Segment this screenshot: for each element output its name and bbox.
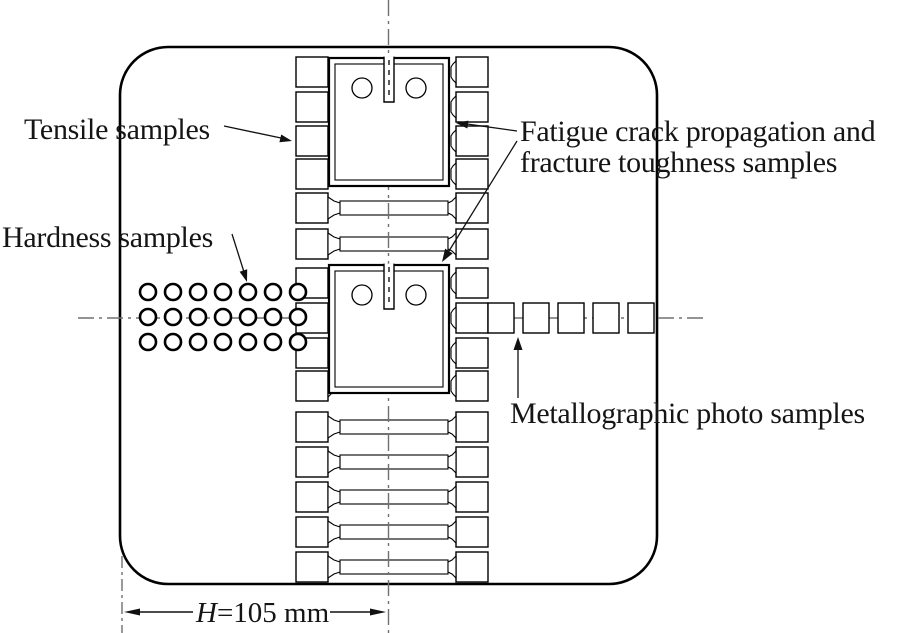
tensile-grip-square-left [296, 159, 328, 189]
hardness-sample-circle [240, 284, 256, 300]
tensile-grip-square-right [456, 552, 488, 582]
ct-pin-hole-right [406, 78, 426, 98]
tensile-samples-label: Tensile samples [24, 113, 210, 146]
metallographic-sample-square [593, 303, 619, 333]
tensile-grip-square-right [456, 412, 488, 442]
tensile-grip-square-right [456, 126, 488, 156]
fatigue-label-line2: fracture toughness samples [520, 146, 837, 179]
tensile-grip-square-left [296, 126, 328, 156]
tensile-grip-square-right [456, 193, 488, 223]
tensile-grip-square-right [456, 57, 488, 87]
hardness-sample-circle [140, 284, 156, 300]
metallographic-sample-row [488, 303, 654, 333]
hardness-sample-circle [215, 334, 231, 350]
hardness-sample-circle [290, 309, 306, 325]
tensile-grip-square-left [296, 92, 328, 122]
tensile-gauge-strip [340, 420, 448, 434]
metallographic-samples-label: Metallographic photo samples [510, 397, 865, 430]
hardness-sample-circle [265, 334, 281, 350]
tensile-grip-square-left [296, 229, 328, 259]
ct-specimen [329, 264, 449, 393]
tensile-grip-square-right [456, 482, 488, 512]
tensile-grip-square-left [296, 412, 328, 442]
hardness-samples-label: Hardness samples [2, 221, 213, 254]
tensile-gauge-strip [340, 525, 448, 539]
tensile-grips-right-column [448, 57, 488, 582]
tensile-gauge-strip [340, 490, 448, 504]
metallographic-sample-square [558, 303, 584, 333]
dimension-text: H=105 mm [195, 597, 330, 629]
tensile-grip-square-right [456, 268, 488, 298]
hardness-sample-circle [240, 309, 256, 325]
tensile-grip-square-right [456, 229, 488, 259]
ct-pin-hole-right [406, 285, 426, 305]
tensile-grip-square-left [296, 482, 328, 512]
tensile-grip-square-right [456, 371, 488, 401]
tensile-gauge-strip [340, 237, 448, 251]
tensile-grip-square-right [456, 92, 488, 122]
tensile-grip-square-left [296, 447, 328, 477]
hardness-sample-circle [215, 309, 231, 325]
hardness-sample-circle [140, 309, 156, 325]
tensile-grip-square-right [456, 338, 488, 368]
hardness-sample-circle [190, 284, 206, 300]
fatigue-label-line1: Fatigue crack propagation and [520, 115, 876, 148]
tensile-gauge-strip [340, 560, 448, 574]
hardness-sample-circle [290, 334, 306, 350]
hardness-sample-circle [215, 284, 231, 300]
tensile-grip-square-left [296, 57, 328, 87]
tensile-grip-square-right [456, 303, 488, 333]
tensile-gauge-strip [340, 201, 448, 215]
tensile-grip-square-right [456, 159, 488, 189]
hardness-sample-circle [265, 284, 281, 300]
tensile-grip-square-left [296, 193, 328, 223]
metallographic-sample-square [628, 303, 654, 333]
tensile-grip-square-right [456, 447, 488, 477]
metallographic-sample-square [488, 303, 514, 333]
sample-cutting-diagram: Tensile samples Hardness samples Fatigue… [0, 0, 906, 633]
hardness-sample-circle [165, 309, 181, 325]
ct-pin-hole-left [352, 285, 372, 305]
hardness-sample-circle [240, 334, 256, 350]
hardness-sample-grid [140, 284, 306, 350]
ct-pin-hole-left [352, 78, 372, 98]
ct-specimen [329, 57, 449, 186]
hardness-sample-circle [190, 334, 206, 350]
tensile-grip-square-right [456, 517, 488, 547]
metallographic-sample-square [523, 303, 549, 333]
hardness-sample-circle [165, 334, 181, 350]
hardness-sample-circle [265, 309, 281, 325]
hardness-sample-circle [190, 309, 206, 325]
tensile-gauge-strip [340, 455, 448, 469]
hardness-sample-circle [290, 284, 306, 300]
dimension-h105: H=105 mm [124, 597, 386, 629]
hardness-sample-circle [165, 284, 181, 300]
tensile-grip-square-left [296, 517, 328, 547]
hardness-sample-circle [140, 334, 156, 350]
tensile-grip-square-left [296, 371, 328, 401]
tensile-grip-square-left [296, 552, 328, 582]
diagram-svg: Tensile samples Hardness samples Fatigue… [0, 0, 906, 633]
